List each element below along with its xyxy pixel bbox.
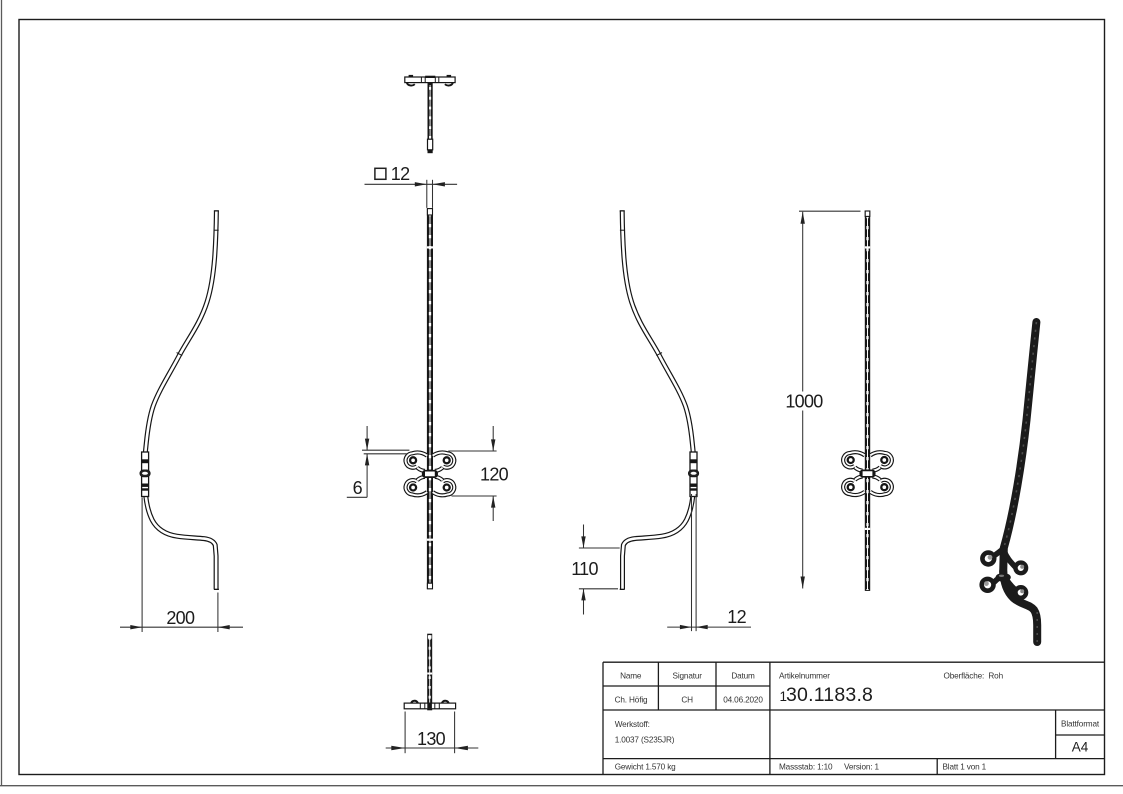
svg-text:Name: Name: [620, 671, 642, 680]
svg-text:Oberfläche: Roh: Oberfläche: Roh: [944, 671, 1004, 680]
svg-text:1000: 1000: [785, 392, 823, 412]
svg-text:Werkstoff:: Werkstoff:: [615, 720, 650, 729]
svg-text:12: 12: [727, 607, 746, 627]
svg-text:6: 6: [353, 478, 363, 498]
svg-text:Blatt 1 von 1: Blatt 1 von 1: [943, 763, 987, 772]
svg-text:CH: CH: [681, 695, 693, 704]
svg-text:Blattformat: Blattformat: [1061, 720, 1100, 729]
svg-text:120: 120: [480, 465, 509, 485]
svg-text:A4: A4: [1072, 740, 1089, 755]
svg-text:Ch. Höfig: Ch. Höfig: [615, 695, 648, 704]
svg-text:Gewicht 1.570 kg: Gewicht 1.570 kg: [615, 763, 676, 772]
svg-text:1.0037 (S235JR): 1.0037 (S235JR): [615, 736, 675, 745]
svg-text:30.1183.8: 30.1183.8: [786, 684, 873, 706]
svg-text:130: 130: [417, 729, 446, 749]
svg-text:Artikelnummer: Artikelnummer: [779, 671, 830, 680]
svg-text:Massstab: 1:10: Massstab: 1:10: [779, 763, 833, 772]
svg-text:110: 110: [571, 559, 598, 579]
svg-text:04.06.2020: 04.06.2020: [723, 695, 763, 704]
svg-text:Signatur: Signatur: [673, 671, 703, 680]
svg-text:Version: 1: Version: 1: [844, 763, 880, 772]
svg-text:200: 200: [166, 608, 195, 628]
svg-text:Datum: Datum: [731, 671, 755, 680]
svg-text:12: 12: [391, 164, 410, 184]
